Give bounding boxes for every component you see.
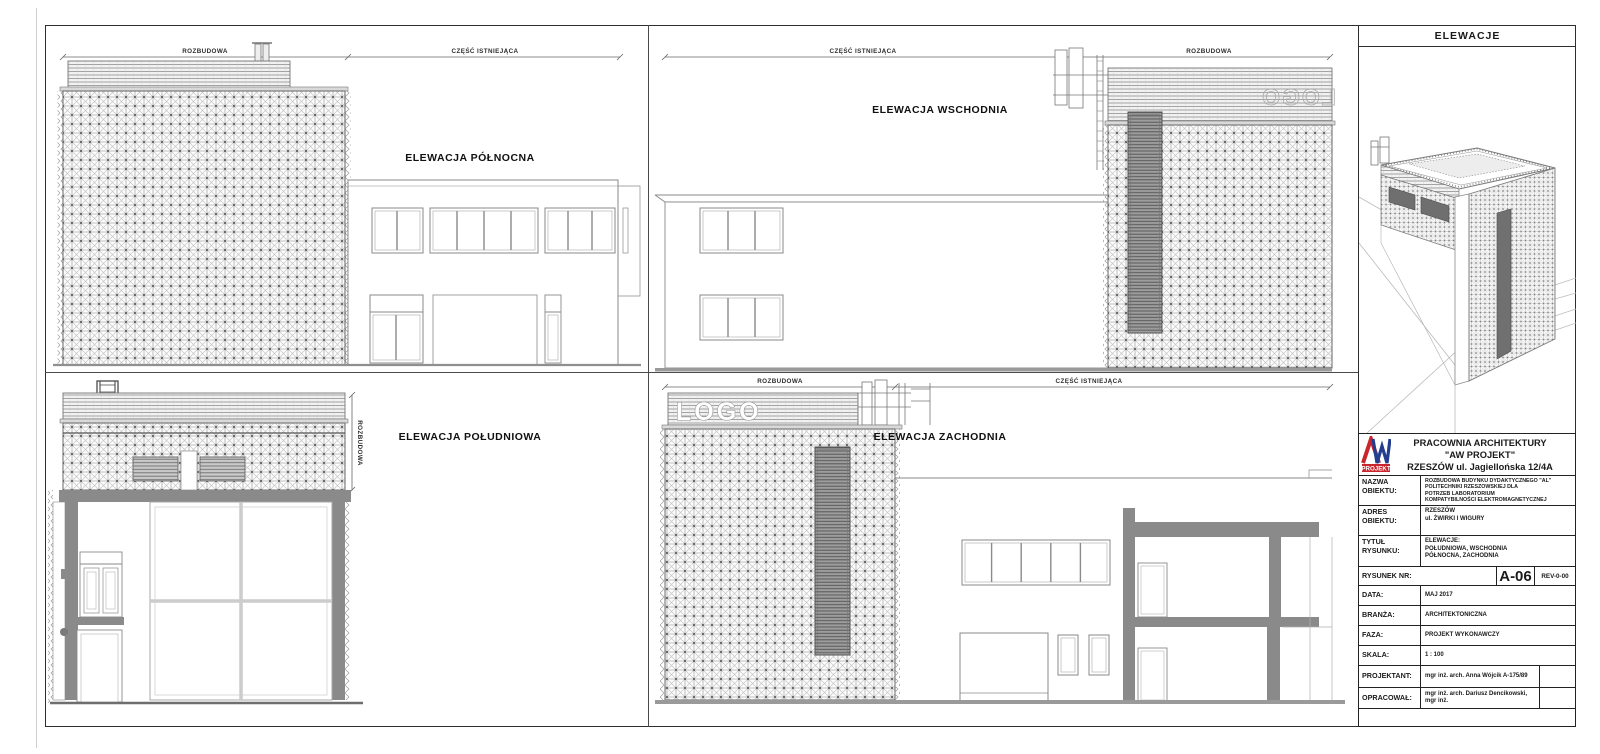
opracowal-signature-cell: [1539, 688, 1575, 708]
opracowal-value: mgr inż. arch. Dariusz Dencikowski, mgr …: [1421, 688, 1539, 708]
perspective-view: [1359, 47, 1576, 433]
west-dim-right-label: CZĘŚĆ ISTNIEJĄCA: [1056, 376, 1123, 385]
west-louvered-window: [815, 447, 850, 655]
north-dimension-line: [60, 54, 623, 60]
projektant-signature-cell: [1539, 666, 1575, 687]
title-block-row-nazwa: NAZWA OBIEKTU: ROZBUDOWA BUDYNKU DYDAKTY…: [1359, 476, 1575, 506]
south-upper-door: [78, 552, 124, 625]
west-elevation-drawing: ROZBUDOWA CZĘŚĆ ISTNIEJĄCA LOGO: [649, 373, 1359, 727]
east-elevation-drawing: CZĘŚĆ ISTNIEJĄCA ROZBUDOWA LOGO ELEWACJ: [649, 25, 1359, 373]
north-title: ELEWACJA PÓŁNOCNA: [405, 151, 534, 164]
title-block-row-rysunek: RYSUNEK NR: A-06 REV-0-00: [1359, 567, 1575, 586]
tytul-label: TYTUŁ RYSUNKU:: [1359, 536, 1421, 566]
west-section-cut: [1123, 508, 1332, 703]
title-block-row-tytul: TYTUŁ RYSUNKU: ELEWACJE: POŁUDNIOWA, WSC…: [1359, 536, 1575, 567]
aw-projekt-logo: PROJEKT: [1361, 436, 1391, 474]
title-block-row-branza: BRANŻA: ARCHITEKTONICZNA: [1359, 606, 1575, 626]
south-parapet-cap: [60, 419, 348, 423]
sheet-header-title: ELEWACJE: [1435, 30, 1501, 42]
drawing-sheet: ELEWACJE ROZBUDOWA CZĘŚĆ ISTNIEJĄCA: [0, 0, 1600, 754]
north-dim-right-label: CZĘŚĆ ISTNIEJĄCA: [452, 46, 519, 55]
east-dim-left-label: CZĘŚĆ ISTNIEJĄCA: [830, 46, 897, 55]
title-block-row-adres: ADRES OBIEKTU: RZESZÓW ul. ŻWIRKI I WIGU…: [1359, 506, 1575, 536]
projektant-value: mgr inż. arch. Anna Wójcik A-175/89: [1421, 666, 1539, 687]
north-elevation-drawing: ROZBUDOWA CZĘŚĆ ISTNIEJĄCA: [45, 25, 649, 373]
paper-edge: [36, 8, 37, 748]
east-dimension-line: [662, 54, 1333, 60]
north-louver-band: [68, 61, 290, 88]
west-parapet-cap: [662, 425, 902, 429]
west-edge-left: [660, 429, 665, 700]
east-logo-back-text: LOGO: [1260, 84, 1336, 110]
west-ribbon-window: [962, 540, 1110, 585]
faza-label: FAZA:: [1359, 626, 1421, 645]
title-block-row-data: DATA: MAJ 2017: [1359, 586, 1575, 606]
drawing-number: A-06: [1496, 567, 1534, 585]
revision-number: REV-0-00: [1534, 567, 1575, 585]
south-louver-band: [63, 393, 345, 419]
title-block-row-skala: SKALA: 1 : 100: [1359, 646, 1575, 666]
north-windows-upper: [372, 208, 628, 253]
west-title: ELEWACJA ZACHODNIA: [874, 431, 1007, 443]
east-edge-left: [1103, 125, 1108, 368]
title-block: PROJEKT PRACOWNIA ARCHITEKTURY "AW PROJE…: [1358, 433, 1576, 727]
east-dim-right-label: ROZBUDOWA: [1186, 48, 1232, 55]
opracowal-label: OPRACOWAŁ:: [1359, 688, 1421, 708]
tytul-value: ELEWACJE: POŁUDNIOWA, WSCHODNIA PÓŁNOCNA…: [1421, 536, 1575, 566]
north-parapet-cap: [60, 87, 348, 91]
roof-ladder-3d: [1371, 137, 1389, 165]
sheet-header: ELEWACJE: [1359, 25, 1576, 47]
north-roof-vent: [252, 43, 272, 61]
south-dim-vertical-label: ROZBUDOWA: [356, 420, 363, 466]
north-dim-left-label: ROZBUDOWA: [182, 48, 228, 55]
south-title: ELEWACJA POŁUDNIOWA: [399, 431, 542, 443]
building-3d: [1371, 137, 1555, 385]
company-name: PRACOWNIA ARCHITEKTURY "AW PROJEKT" RZES…: [1359, 437, 1575, 473]
adres-value: RZESZÓW ul. ŻWIRKI I WIGURY: [1421, 506, 1575, 535]
west-dim-left-label: ROZBUDOWA: [757, 378, 803, 385]
east-title: ELEWACJA WSCHODNIA: [872, 104, 1008, 116]
projektant-label: PROJEKTANT:: [1359, 666, 1421, 687]
skala-label: SKALA:: [1359, 646, 1421, 665]
title-block-row-empty: [1359, 709, 1575, 726]
title-block-row-faza: FAZA: PROJEKT WYKONAWCZY: [1359, 626, 1575, 646]
west-logo-text: LOGO: [676, 398, 762, 426]
south-vertical-dimension: [349, 392, 355, 493]
skala-value: 1 : 100: [1421, 646, 1575, 665]
data-value: MAJ 2017: [1421, 586, 1575, 605]
east-louvered-window: [1128, 112, 1162, 333]
west-ground-line: [655, 700, 1345, 704]
nazwa-value: ROZBUDOWA BUDYNKU DYDAKTYCZNEGO "AL" POL…: [1421, 476, 1575, 505]
title-block-row-opracowal: OPRACOWAŁ: mgr inż. arch. Dariusz Dencik…: [1359, 688, 1575, 709]
data-label: DATA:: [1359, 586, 1421, 605]
east-rooftop-structure: [1053, 48, 1108, 170]
title-block-row-projektant: PROJEKTANT: mgr inż. arch. Anna Wójcik A…: [1359, 666, 1575, 688]
north-edge-left: [58, 91, 63, 365]
branza-label: BRANŻA:: [1359, 606, 1421, 625]
south-interior-glazing: [150, 502, 332, 700]
south-elevation-drawing: ROZBUDOWA: [45, 373, 649, 727]
rysunek-label: RYSUNEK NR:: [1359, 567, 1496, 585]
west-facade-hatch: [665, 429, 895, 700]
north-windows-lower: [370, 295, 561, 365]
branza-value: ARCHITEKTONICZNA: [1421, 606, 1575, 625]
south-lower-door: [77, 630, 122, 702]
faza-value: PROJEKT WYKONAWCZY: [1421, 626, 1575, 645]
north-facade-hatch: [63, 91, 345, 365]
adres-label: ADRES OBIEKTU:: [1359, 506, 1421, 535]
nazwa-label: NAZWA OBIEKTU:: [1359, 476, 1421, 505]
west-gate-and-windows: [960, 633, 1109, 703]
west-existing-building: [895, 470, 1332, 478]
title-block-company-row: PROJEKT PRACOWNIA ARCHITEKTURY "AW PROJE…: [1359, 434, 1575, 476]
east-ground-line: [655, 368, 1332, 372]
west-edge-right: [895, 429, 900, 700]
logo-text: PROJEKT: [1361, 466, 1390, 473]
